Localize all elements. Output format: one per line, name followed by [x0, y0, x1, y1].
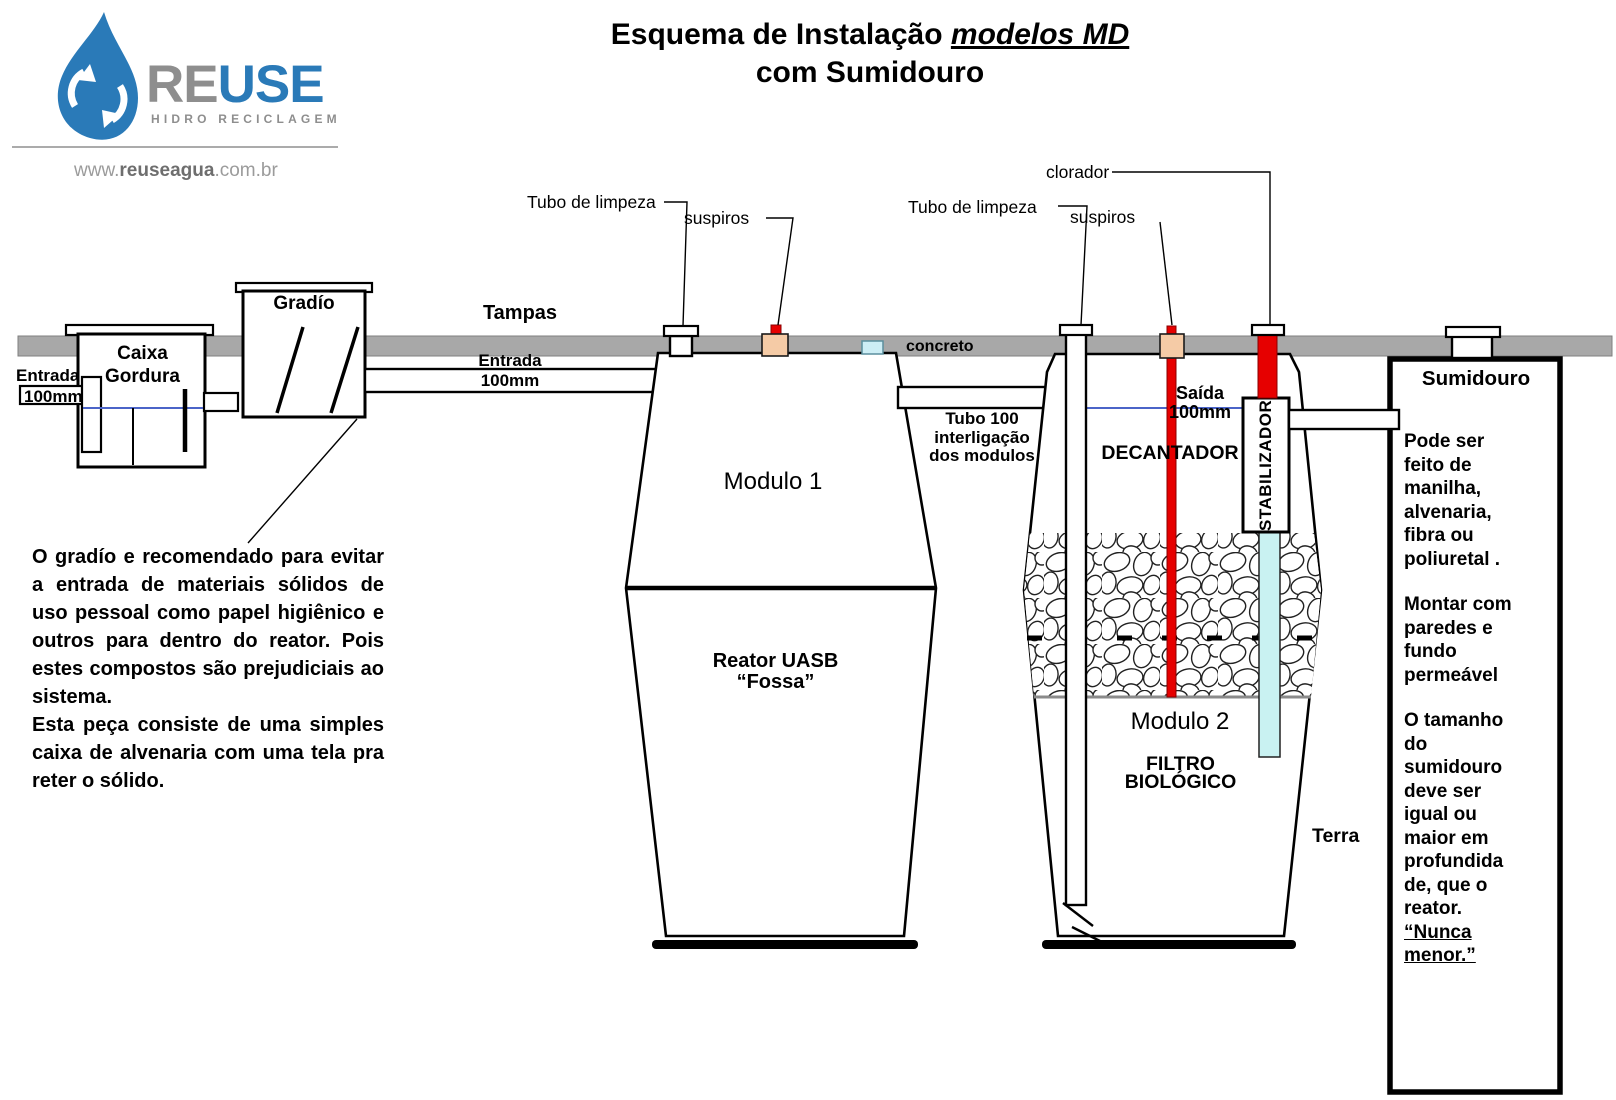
label-saida: Saída 100mm [1162, 384, 1238, 422]
outlet-pipe-to-sumidouro [1289, 410, 1399, 429]
label-entrada-left-size: 100mm [24, 388, 83, 406]
label-suspiros-2: suspiros [1070, 208, 1135, 227]
label-clorador: clorador [1046, 163, 1109, 182]
page-title: Esquema de Instalação modelos MD com Sum… [420, 16, 1320, 92]
chlorinator-tube [1258, 334, 1277, 398]
label-modulo1: Modulo 1 [698, 469, 848, 495]
label-gradio: Gradío [258, 294, 350, 315]
label-entrada-mid: Entrada [455, 352, 565, 370]
gradio-screen-box [236, 283, 372, 543]
gradio-note: O gradío e recomendado para evitar a ent… [32, 543, 384, 795]
label-tubo-limpeza-2: Tubo de limpeza [908, 198, 1037, 217]
sumidouro-vent-pipe [1452, 336, 1492, 358]
label-entrada-mid-size: 100mm [455, 372, 565, 390]
label-terra: Terra [1312, 826, 1359, 847]
logo-divider [12, 146, 338, 148]
outlet-red-tube [1167, 326, 1176, 697]
modulo1-cleaning-cap [664, 326, 698, 336]
label-concreto: concreto [906, 338, 974, 355]
label-reator-uasb: Reator UASB “Fossa” [688, 651, 863, 693]
logo-wordmark: REUSE [146, 56, 324, 113]
label-interligacao: Tubo 100 interligação dos modulos [902, 410, 1062, 466]
sumidouro-vent-cap [1446, 327, 1500, 337]
suspiro2-collar [1160, 334, 1184, 358]
label-tubo-limpeza-1: Tubo de limpeza [527, 193, 656, 212]
label-decantador: DECANTADOR [1090, 443, 1250, 464]
logo-drop-icon [58, 12, 138, 140]
suspiro1-collar [762, 334, 788, 356]
chlorinator-cap [1252, 325, 1284, 335]
logo-tagline: HIDRO RECICLAGEM [151, 112, 341, 126]
label-sumidouro: Sumidouro [1398, 368, 1554, 390]
modulo1-cleaning-pipe [670, 336, 692, 356]
label-suspiros-1: suspiros [684, 209, 749, 228]
label-entrada-left: Entrada [16, 367, 79, 385]
label-tampas: Tampas [470, 303, 570, 325]
label-estabilizador: STABILIZADOR [1243, 398, 1289, 532]
diffuser-tube [1259, 532, 1280, 757]
website-url[interactable]: www.reuseagua.com.br [74, 160, 278, 182]
label-caixa-gordura: Caixa Gordura [95, 342, 190, 388]
leader-lines [664, 172, 1270, 326]
inspection-chip [862, 341, 883, 354]
gradio-leader-line [248, 419, 357, 543]
interconnection-pipe [898, 387, 1064, 408]
label-modulo2: Modulo 2 [1100, 709, 1260, 735]
title-line1: Esquema de Instalação modelos MD [420, 16, 1320, 54]
installation-diagram: Esquema de Instalação modelos MD com Sum… [0, 0, 1616, 1100]
label-filtro-biologico: FILTRO BIOLÓGICO [1098, 755, 1263, 791]
sumidouro-note: Pode ser feito de manilha, alvenaria, fi… [1404, 430, 1522, 968]
title-line2: com Sumidouro [420, 54, 1320, 92]
